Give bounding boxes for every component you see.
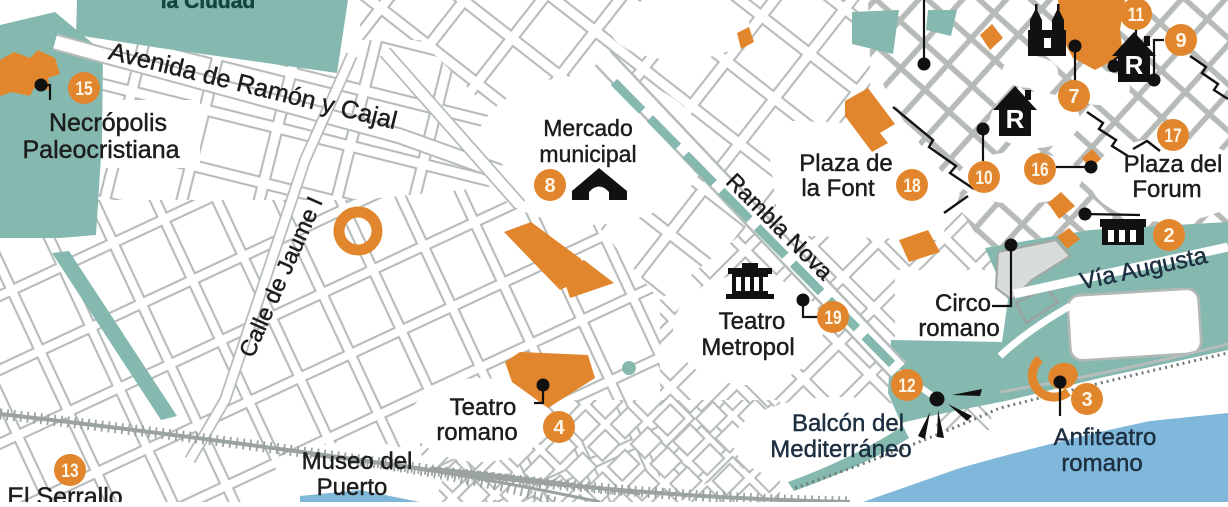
svg-text:17: 17 — [1164, 125, 1181, 147]
svg-text:Teatro: Teatro — [719, 308, 786, 335]
svg-text:romano: romano — [1061, 450, 1142, 477]
svg-text:10: 10 — [975, 167, 992, 189]
svg-text:municipal: municipal — [539, 141, 636, 167]
svg-text:9: 9 — [1175, 30, 1186, 52]
svg-text:8: 8 — [544, 175, 555, 197]
svg-text:Anfiteatro: Anfiteatro — [1054, 424, 1157, 451]
svg-text:Paleocristiana: Paleocristiana — [22, 136, 179, 164]
svg-text:Teatro: Teatro — [450, 394, 517, 421]
svg-text:15: 15 — [75, 78, 93, 100]
svg-text:romano: romano — [918, 315, 999, 342]
svg-text:Metropol: Metropol — [701, 334, 794, 361]
svg-text:R: R — [1125, 50, 1144, 80]
svg-text:12: 12 — [898, 375, 915, 397]
svg-text:la Font: la Font — [801, 175, 875, 202]
svg-text:3: 3 — [1081, 389, 1092, 411]
svg-text:18: 18 — [903, 175, 921, 197]
svg-text:la Ciudad: la Ciudad — [161, 0, 256, 13]
svg-text:7: 7 — [1068, 86, 1079, 108]
svg-text:Necrópolis: Necrópolis — [49, 109, 167, 137]
svg-text:Plaza de: Plaza de — [799, 150, 892, 177]
svg-text:Puerto: Puerto — [317, 474, 388, 501]
svg-text:Plaza del: Plaza del — [1124, 151, 1223, 178]
svg-text:Balcón del: Balcón del — [792, 410, 904, 437]
svg-text:Circo: Circo — [935, 290, 991, 317]
svg-text:13: 13 — [61, 460, 79, 482]
svg-text:Mercado: Mercado — [543, 115, 632, 141]
svg-text:19: 19 — [824, 307, 842, 329]
svg-text:16: 16 — [1031, 159, 1049, 181]
svg-text:4: 4 — [553, 417, 565, 439]
svg-text:Mediterráneo: Mediterráneo — [770, 436, 911, 463]
svg-text:2: 2 — [1163, 225, 1174, 247]
svg-text:romano: romano — [436, 419, 517, 446]
svg-text:El Serrallo: El Serrallo — [7, 483, 122, 502]
svg-text:11: 11 — [1128, 4, 1145, 26]
svg-text:R: R — [1006, 104, 1025, 134]
svg-text:Museo del: Museo del — [302, 448, 413, 475]
svg-text:Forum: Forum — [1132, 176, 1201, 203]
